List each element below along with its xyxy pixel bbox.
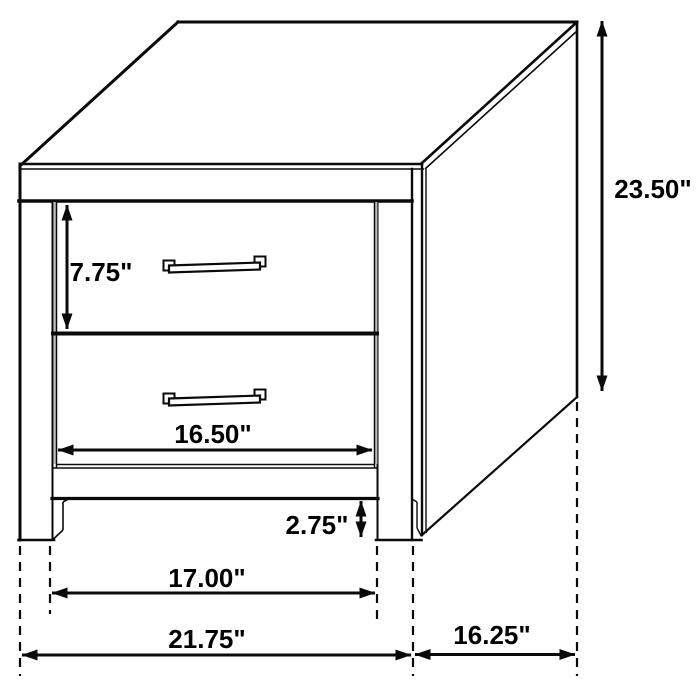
overall-depth-label: 16.25": [453, 620, 530, 650]
foot-height-label: 2.75": [286, 510, 349, 540]
dimension-diagram-page: 7.75" 16.50" 2.75" 17.00" 21.75" 16.25" …: [0, 0, 700, 700]
inner-width-label: 17.00": [168, 563, 245, 593]
nightstand-dimension-diagram: 7.75" 16.50" 2.75" 17.00" 21.75" 16.25" …: [0, 0, 700, 700]
opening-width-label: 16.50": [174, 419, 251, 449]
background: [0, 0, 700, 700]
overall-height-label: 23.50": [614, 174, 691, 204]
overall-width-label: 21.75": [168, 624, 245, 654]
drawer-height-label: 7.75": [70, 257, 133, 287]
